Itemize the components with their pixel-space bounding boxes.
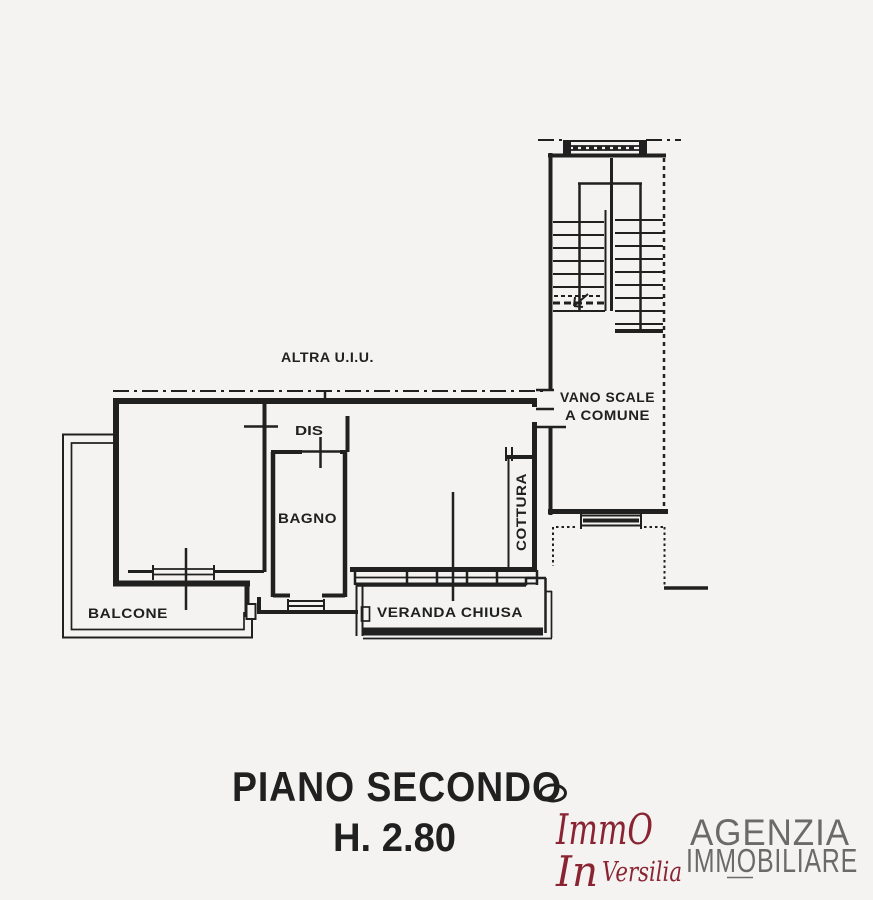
- room-label-bagno: BAGNO: [278, 511, 337, 526]
- stairwell-block: VANO SCALE A COMUNE: [536, 140, 708, 588]
- room-label-vano-scale-1: VANO SCALE: [560, 390, 655, 405]
- logo-brand-in: In: [555, 847, 598, 896]
- veranda: VERANDA CHIUSA: [356, 578, 552, 639]
- label-altra-uiu: ALTRA U.I.U.: [281, 350, 374, 365]
- scanned-floorplan-page: VANO SCALE A COMUNE: [0, 0, 873, 900]
- left-room-window-symbol: [153, 548, 214, 610]
- room-label-dis: DIS: [295, 424, 323, 438]
- main-room: COTTURA: [355, 447, 537, 601]
- stair-bottom-door-symbol: [581, 512, 641, 529]
- projection-dotted-lines: [553, 527, 708, 588]
- boundary-lines: [113, 140, 681, 391]
- logo-agency-line2: IMMOBILIARE: [686, 842, 858, 879]
- left-room: [128, 404, 278, 610]
- balcony-step-notch: [247, 604, 256, 619]
- logo-brand-versilia: Versilia: [602, 857, 682, 888]
- floor-title: PIANO SECONDO: [232, 763, 562, 810]
- room-label-cottura: COTTURA: [514, 473, 529, 551]
- room-label-vano-scale-2: A COMUNE: [565, 408, 650, 423]
- hallway-and-bathroom: DIS BAGNO: [257, 416, 358, 613]
- floor-height: H. 2.80: [333, 816, 456, 860]
- room-label-balcone: BALCONE: [88, 606, 168, 621]
- room-label-veranda: VERANDA CHIUSA: [377, 605, 523, 620]
- stairs: [553, 158, 663, 333]
- bathroom-door-symbol: [302, 437, 343, 468]
- agency-logo: ImmO In Versilia AGENZIA IMMOBILIARE: [541, 785, 859, 896]
- floorplan-drawing: VANO SCALE A COMUNE: [0, 0, 873, 900]
- balcony: BALCONE: [63, 435, 256, 638]
- caption-block: PIANO SECONDO H. 2.80: [232, 763, 562, 860]
